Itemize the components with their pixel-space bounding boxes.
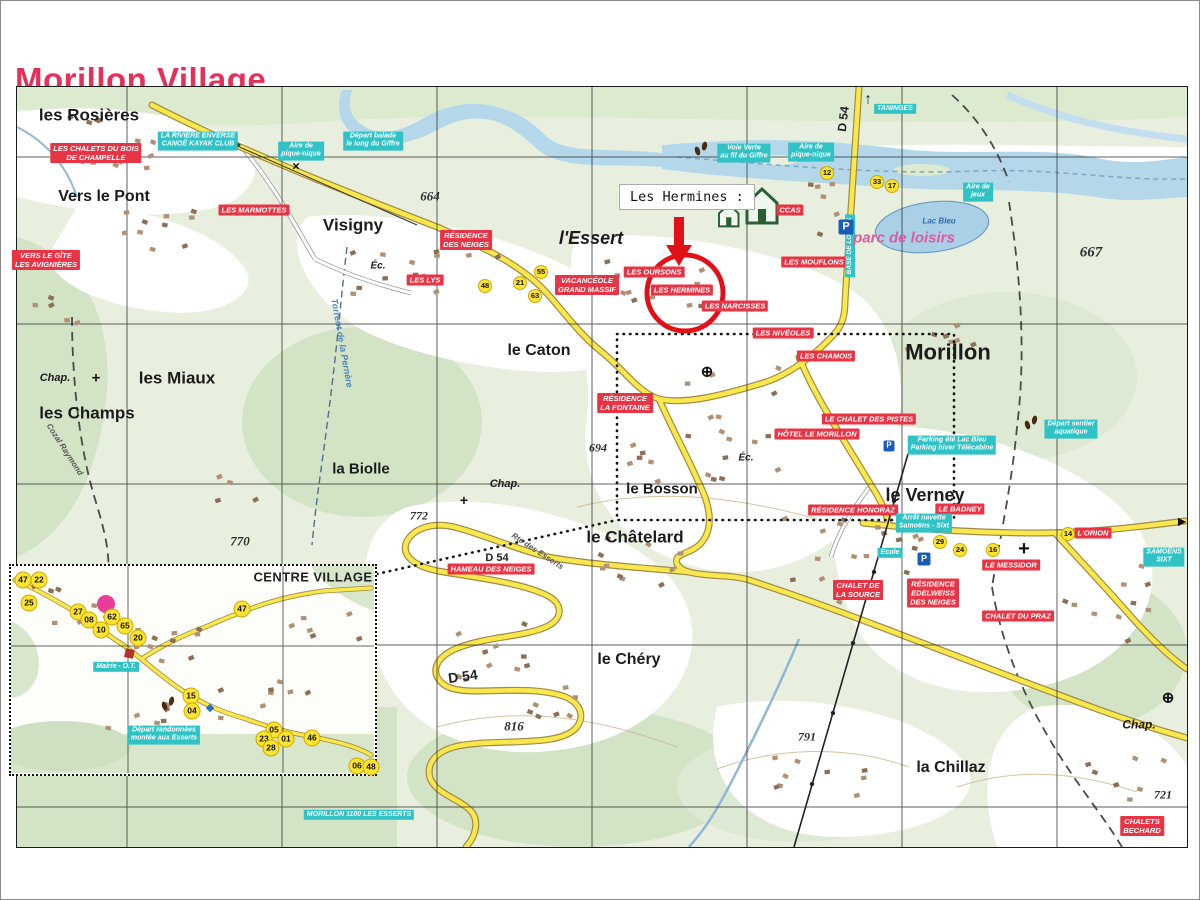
centre-village-inset	[9, 564, 377, 776]
map-document-page: Morillon Village	[0, 0, 1200, 900]
les-hermines-callout: Les Hermines :	[619, 184, 755, 210]
church-marker	[97, 595, 115, 613]
callout-text: Les Hermines :	[630, 189, 744, 205]
mairie-marker	[124, 648, 135, 659]
